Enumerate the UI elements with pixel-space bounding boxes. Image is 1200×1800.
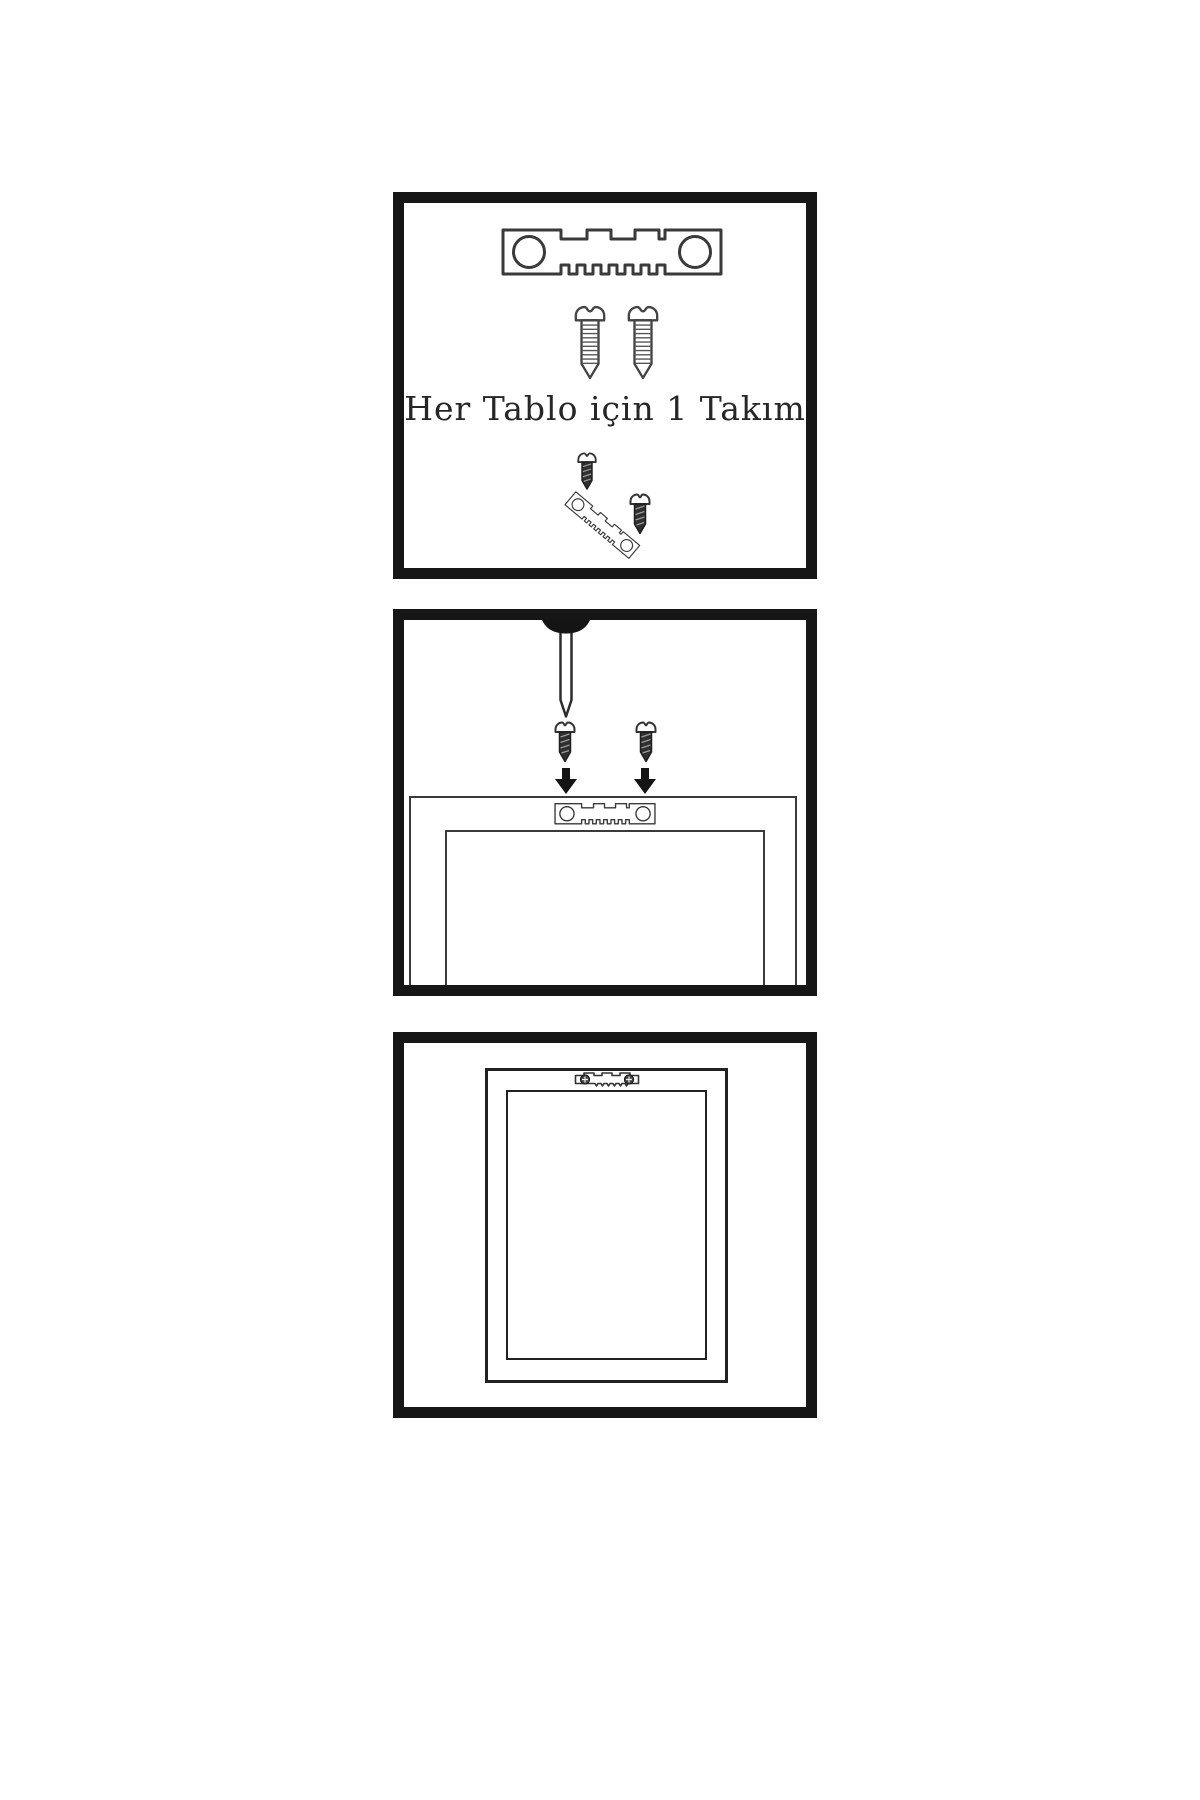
screw-dark-icon [631, 495, 650, 534]
brand-logo: ENK WALL ART [0, 1480, 1200, 1700]
kit-caption: Her Tablo için 1 Takım [404, 389, 806, 428]
screw-dark-icon [553, 721, 577, 763]
panel-hang-frame [393, 1032, 817, 1418]
sawtooth-hanger-icon [552, 800, 658, 828]
sawtooth-hanger-mounted-icon [574, 1071, 640, 1088]
nail-icon [542, 620, 590, 720]
frame-front-inner-outline [506, 1090, 707, 1360]
screw-dark-icon [578, 453, 595, 489]
frame-back-inner-outline [445, 830, 765, 985]
screw-icon [573, 305, 607, 381]
screw-dark-icon [634, 721, 658, 763]
hanger-assembly-icon [558, 450, 678, 568]
instruction-sheet: Her Tablo için 1 Takım [0, 0, 1200, 1800]
sawtooth-hanger-angled-icon [565, 492, 640, 559]
panel-kit-contents: Her Tablo için 1 Takım [393, 192, 817, 579]
screw-icon [626, 305, 660, 381]
arrow-down-icon [554, 768, 578, 794]
sawtooth-hanger-icon [497, 221, 727, 283]
panel-install-hanger [393, 609, 817, 996]
arrow-down-icon [633, 768, 657, 794]
